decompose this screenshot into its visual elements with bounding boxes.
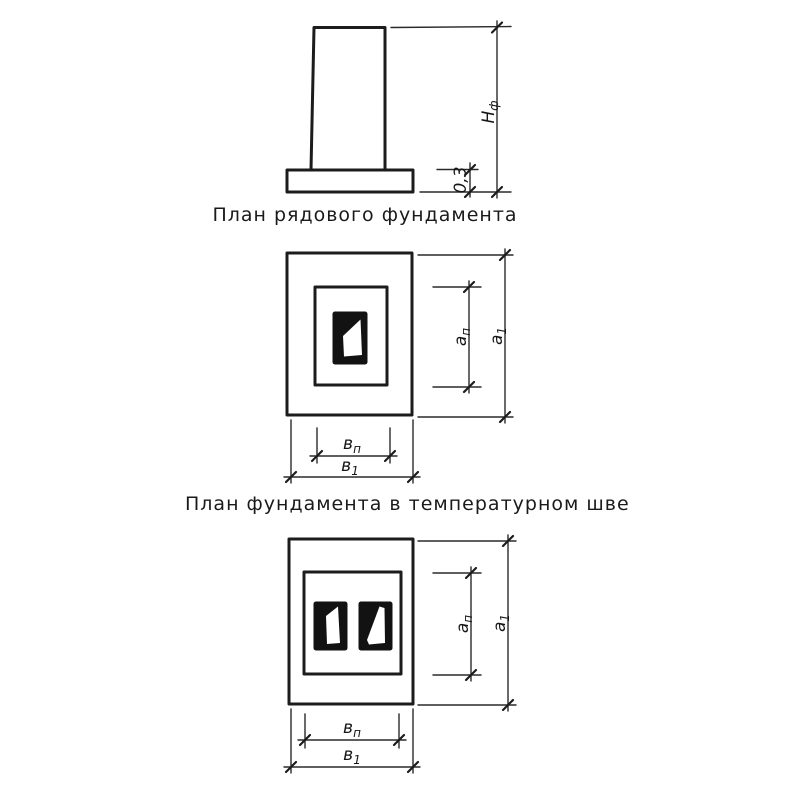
dim-label-hf: Нф xyxy=(479,100,501,123)
plan-single-view: ап а1 вп в1 xyxy=(284,249,513,483)
extension-line xyxy=(391,27,511,28)
dim-label-an: ап xyxy=(453,615,475,633)
dim-label-a1: а1 xyxy=(490,614,512,632)
plan-single-dim-b1: в1 xyxy=(284,456,420,482)
elevation-dim-hf: Нф xyxy=(479,21,502,198)
plan-joint-dim-an: ап xyxy=(453,567,476,681)
plan-single-socket-opening xyxy=(333,312,367,364)
plan-joint-dim-b1: в1 xyxy=(284,745,420,772)
dim-label-an: ап xyxy=(451,328,473,346)
elevation-view: Нф 0,3 xyxy=(287,21,511,198)
plan-joint-dim-a1: а1 xyxy=(490,535,513,711)
plan-joint-socket-opening-right xyxy=(359,602,392,650)
foundation-column-outline xyxy=(311,28,385,171)
dim-label-b1: в1 xyxy=(341,456,359,478)
plan-joint-socket-opening-left xyxy=(314,602,347,650)
plan-single-dim-bn: вп xyxy=(310,434,397,461)
dim-label-base-thickness: 0,3 xyxy=(451,166,471,193)
drawing-canvas: Нф 0,3 ап xyxy=(0,0,800,800)
foundation-base-outline xyxy=(287,170,413,192)
title-plan-single: План рядового фундамента xyxy=(200,204,530,226)
dim-label-a1: а1 xyxy=(487,327,509,345)
plan-single-dim-a1: а1 xyxy=(487,249,510,423)
plan-joint-view: ап а1 вп в1 xyxy=(284,535,516,773)
dim-label-b1: в1 xyxy=(343,745,361,767)
dim-label-bn: вп xyxy=(343,434,361,456)
title-plan-joint: План фундамента в температурном шве xyxy=(185,493,585,515)
plan-single-dim-an: ап xyxy=(451,281,474,393)
plan-joint-outer-outline xyxy=(289,539,413,704)
elevation-dim-base-thickness: 0,3 xyxy=(451,163,475,197)
plan-joint-dim-bn: вп xyxy=(298,718,406,745)
dim-label-bn: вп xyxy=(343,718,361,740)
